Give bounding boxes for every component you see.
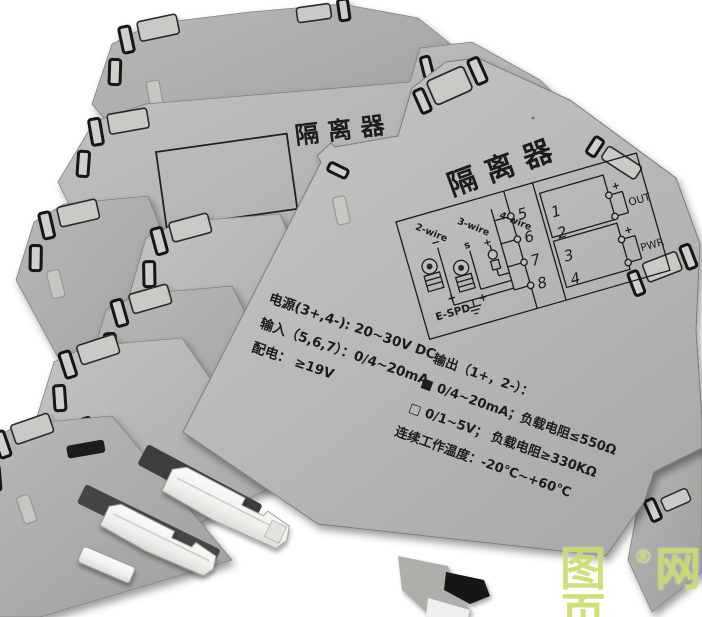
product-photo: 隔离器: [0, 0, 702, 617]
watermark-text-left: 图页: [560, 546, 633, 617]
registered-mark-icon: ®: [634, 548, 654, 567]
watermark: 图页®网: [560, 546, 702, 617]
watermark-text-right: 网: [655, 546, 702, 592]
front-module-foot: [398, 556, 490, 617]
isolator-stack-scene: 隔离器: [0, 0, 702, 617]
